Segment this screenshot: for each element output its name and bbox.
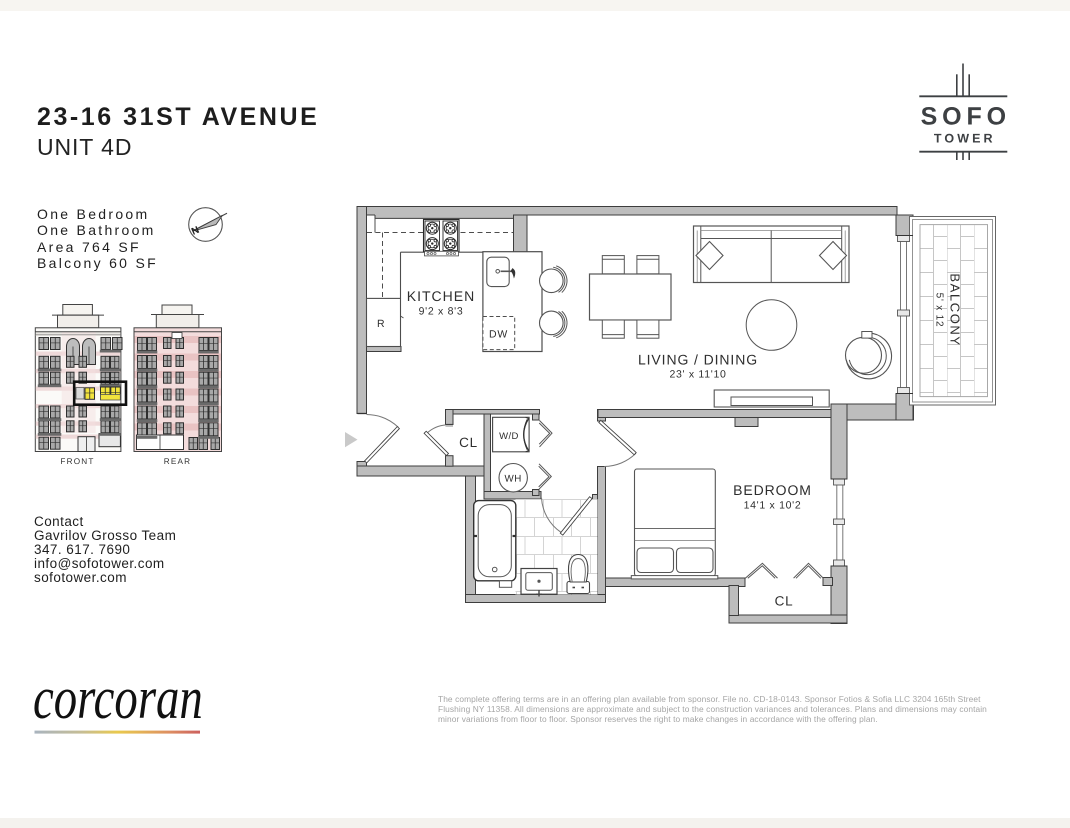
svg-text:BALCONY: BALCONY bbox=[948, 273, 963, 346]
svg-text:5' x 12: 5' x 12 bbox=[934, 293, 945, 328]
svg-text:LIVING / DINING: LIVING / DINING bbox=[638, 351, 758, 367]
svg-text:BEDROOM: BEDROOM bbox=[733, 482, 812, 498]
svg-text:CL: CL bbox=[459, 435, 478, 450]
svg-text:23' x 11'10: 23' x 11'10 bbox=[669, 368, 726, 380]
svg-text:9'2 x 8'3: 9'2 x 8'3 bbox=[419, 305, 464, 317]
svg-text:KITCHEN: KITCHEN bbox=[407, 288, 475, 304]
svg-text:WH: WH bbox=[505, 474, 522, 485]
svg-text:CL: CL bbox=[775, 593, 794, 608]
svg-text:DW: DW bbox=[489, 328, 508, 340]
svg-text:R: R bbox=[377, 318, 385, 330]
svg-text:W/D: W/D bbox=[499, 431, 519, 442]
svg-text:14'1 x 10'2: 14'1 x 10'2 bbox=[744, 499, 802, 511]
